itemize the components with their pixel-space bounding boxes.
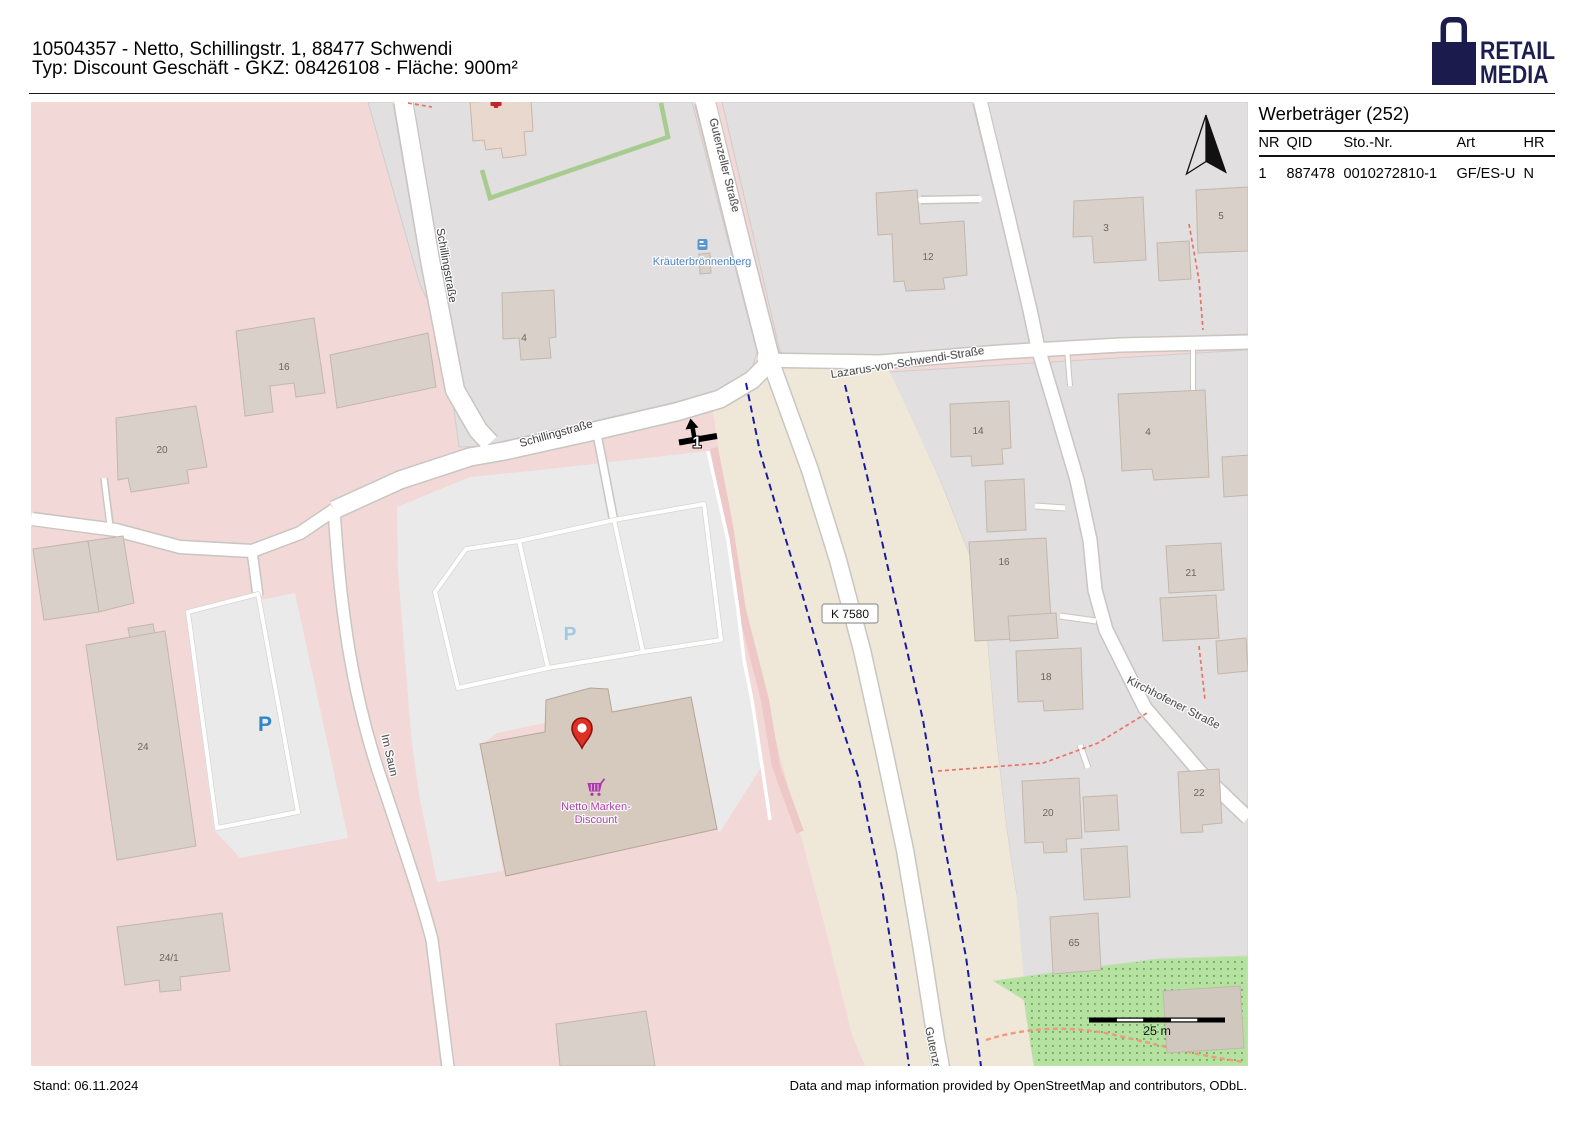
svg-text:65: 65 bbox=[1068, 938, 1080, 949]
svg-text:K 7580: K 7580 bbox=[831, 607, 869, 621]
svg-text:1: 1 bbox=[693, 435, 702, 452]
svg-text:12: 12 bbox=[922, 252, 934, 263]
svg-text:22: 22 bbox=[1193, 788, 1205, 799]
svg-text:25 m: 25 m bbox=[1143, 1024, 1171, 1038]
svg-text:3: 3 bbox=[1103, 223, 1109, 234]
svg-text:16: 16 bbox=[278, 362, 290, 373]
svg-text:24/1: 24/1 bbox=[159, 953, 179, 964]
svg-text:18: 18 bbox=[1040, 672, 1052, 683]
svg-text:4: 4 bbox=[1145, 427, 1151, 438]
svg-text:16: 16 bbox=[998, 557, 1010, 568]
svg-text:P: P bbox=[258, 713, 272, 736]
svg-text:24: 24 bbox=[137, 742, 149, 753]
svg-text:Kräuterbrönnenberg: Kräuterbrönnenberg bbox=[653, 256, 751, 268]
svg-text:20: 20 bbox=[156, 445, 168, 456]
svg-text:Discount: Discount bbox=[575, 814, 618, 826]
svg-text:14: 14 bbox=[972, 426, 984, 437]
svg-text:20: 20 bbox=[1042, 808, 1054, 819]
svg-text:21: 21 bbox=[1185, 568, 1197, 579]
svg-text:Netto Marken-: Netto Marken- bbox=[561, 801, 631, 813]
svg-text:P: P bbox=[564, 624, 577, 645]
svg-text:4: 4 bbox=[521, 333, 527, 344]
svg-text:5: 5 bbox=[1218, 211, 1224, 222]
